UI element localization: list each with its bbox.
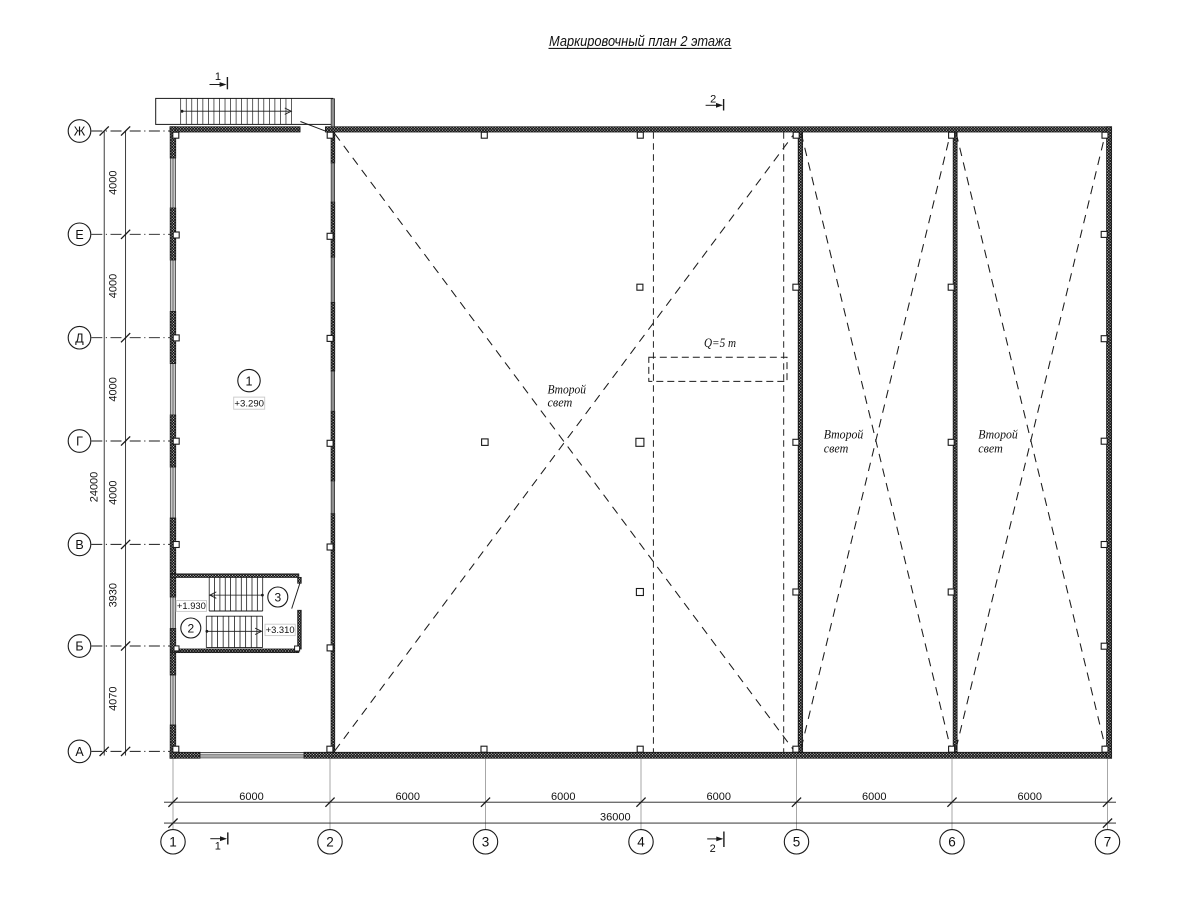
svg-text:Д: Д — [75, 331, 84, 345]
svg-text:Маркировочный план 2 этажа: Маркировочный план 2 этажа — [549, 33, 731, 50]
svg-text:Второй: Второй — [978, 427, 1018, 442]
svg-text:4000: 4000 — [107, 274, 119, 298]
svg-text:3930: 3930 — [107, 583, 119, 607]
svg-text:3: 3 — [274, 590, 281, 604]
svg-text:4000: 4000 — [107, 480, 119, 504]
svg-text:Б: Б — [75, 640, 83, 654]
svg-text:36000: 36000 — [600, 812, 631, 824]
svg-text:свет: свет — [824, 440, 849, 455]
svg-text:5: 5 — [793, 835, 801, 850]
svg-text:А: А — [75, 745, 84, 759]
svg-text:Второй: Второй — [824, 427, 864, 442]
svg-text:Е: Е — [75, 228, 83, 242]
svg-text:24000: 24000 — [88, 472, 100, 503]
svg-text:6000: 6000 — [862, 791, 886, 803]
svg-text:6000: 6000 — [551, 791, 575, 803]
svg-text:В: В — [75, 538, 83, 552]
svg-text:Г: Г — [76, 435, 83, 449]
svg-text:1: 1 — [246, 374, 253, 388]
svg-text:1: 1 — [169, 835, 177, 850]
svg-text:2: 2 — [710, 843, 716, 855]
svg-text:6000: 6000 — [707, 791, 731, 803]
svg-text:6000: 6000 — [239, 791, 263, 803]
svg-text:свет: свет — [978, 440, 1003, 455]
svg-text:6: 6 — [948, 835, 956, 850]
svg-text:2: 2 — [326, 835, 334, 850]
svg-text:7: 7 — [1104, 835, 1112, 850]
svg-text:2: 2 — [710, 93, 716, 105]
svg-text:4000: 4000 — [107, 377, 119, 401]
svg-text:+3.290: +3.290 — [234, 399, 264, 410]
svg-text:1: 1 — [215, 841, 221, 853]
svg-text:2: 2 — [187, 621, 194, 635]
svg-text:+1.930: +1.930 — [177, 600, 206, 611]
svg-text:6000: 6000 — [1018, 791, 1042, 803]
svg-text:свет: свет — [548, 394, 573, 409]
svg-text:+3.310: +3.310 — [266, 624, 295, 635]
svg-text:Ж: Ж — [74, 125, 86, 139]
svg-text:Q=5 т: Q=5 т — [704, 336, 736, 350]
svg-text:4070: 4070 — [107, 686, 119, 710]
svg-text:4000: 4000 — [107, 170, 119, 194]
svg-text:4: 4 — [637, 835, 645, 850]
svg-text:6000: 6000 — [396, 791, 420, 803]
svg-text:1: 1 — [215, 71, 221, 83]
svg-text:3: 3 — [482, 835, 490, 850]
